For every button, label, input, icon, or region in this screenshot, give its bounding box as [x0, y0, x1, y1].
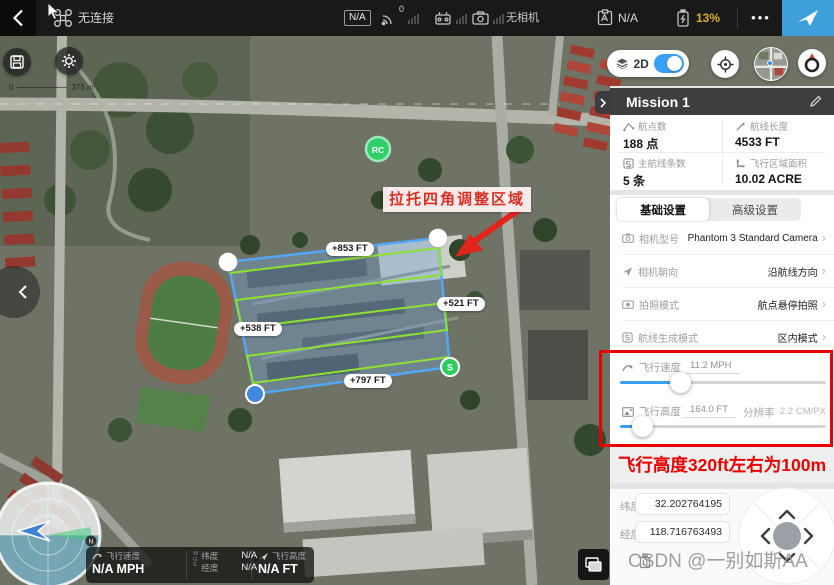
scale-start: 0 — [9, 83, 13, 92]
dpad-center[interactable] — [773, 522, 801, 550]
telemetry-alt-value: N/A FT — [258, 562, 308, 577]
mission-stats: 航点数 188 点 航线长度 4533 FT 主航线条数 5 条 飞行区域面积 … — [610, 115, 834, 190]
minimap-button[interactable] — [754, 47, 788, 81]
satellite-count: 0 — [399, 0, 404, 27]
telemetry-lat-label: 纬度 — [201, 550, 218, 562]
more-menu-button[interactable]: ••• — [744, 0, 778, 36]
toggle-2d-label: 2D — [633, 57, 648, 71]
panel-collapse-tab[interactable] — [595, 91, 611, 114]
speed-slider-knob[interactable] — [670, 372, 691, 393]
heading-arrow-icon — [622, 266, 633, 277]
chevron-right-icon: › — [822, 266, 826, 276]
route-mode-icon — [622, 332, 633, 343]
setting-value: 区内模式 — [778, 330, 818, 345]
mission-title: Mission 1 — [626, 94, 809, 110]
edge-length-label-bottom: +797 FT — [344, 374, 392, 388]
chevron-right-icon: › — [822, 299, 826, 309]
telemetry-bar: 飞行速度 N/A MPH W G S 纬度N/A 经度N/A 飞行高度 N/A … — [86, 547, 314, 583]
locate-button[interactable] — [711, 50, 739, 78]
photo-mode-icon — [622, 299, 634, 309]
camera-status: 无相机 — [506, 0, 539, 36]
stat-route-length: 航线长度 4533 FT — [722, 115, 834, 152]
stat-area: 飞行区域面积 10.02 ACRE — [722, 152, 834, 189]
stat-value: 188 点 — [623, 135, 722, 152]
stat-value: 5 条 — [623, 172, 722, 189]
main-lines-icon — [623, 158, 634, 169]
telemetry-speed-label: 飞行速度 — [106, 550, 140, 562]
save-icon — [10, 55, 24, 69]
battery-percent: 13% — [696, 0, 720, 36]
stat-label: 航线长度 — [750, 119, 788, 133]
setting-camera-model[interactable]: 相机型号 Phantom 3 Standard Camera› — [610, 222, 834, 254]
corner-handle-top-right[interactable] — [429, 229, 448, 248]
map-layer-button[interactable] — [578, 549, 609, 580]
tab-advanced-settings[interactable]: 高级设置 — [709, 198, 801, 221]
stat-value: 10.02 ACRE — [735, 172, 834, 186]
start-marker-label: S — [447, 363, 453, 373]
setting-value: 航点悬停拍照 — [758, 297, 818, 312]
chevron-right-icon — [600, 98, 606, 108]
stat-label: 主航线条数 — [638, 156, 686, 170]
chevron-left-icon — [18, 285, 28, 299]
tab-basic-settings[interactable]: 基础设置 — [617, 198, 709, 221]
speed-icon — [622, 362, 634, 373]
setting-label: 相机朝向 — [638, 264, 678, 279]
minimap-thumbnail — [755, 47, 787, 81]
layers-icon — [616, 57, 628, 70]
resolution-value: 2.2 CM/PX — [780, 406, 826, 417]
takeoff-button[interactable] — [782, 0, 834, 36]
telemetry-lng-label: 经度 — [201, 562, 218, 574]
trash-icon[interactable] — [638, 553, 652, 569]
setting-photo-mode[interactable]: 拍照模式 航点悬停拍照› — [610, 288, 834, 320]
mission-panel: Mission 1 航点数 188 点 航线长度 4533 FT 主航线条数 5… — [610, 86, 834, 585]
checklist-icon — [596, 9, 614, 27]
camera-icon — [622, 233, 634, 243]
camera-signal-bars — [493, 14, 504, 24]
map-scale-bar: 0 375 m — [9, 83, 94, 92]
telemetry-alt-label: 飞行高度 — [272, 550, 306, 562]
speed-slider-value: 11.2 MPH — [682, 360, 740, 374]
setting-camera-heading[interactable]: 相机朝向 沿航线方向› — [610, 255, 834, 287]
rc-status-badge: N/A — [618, 0, 638, 36]
altitude-icon — [622, 407, 634, 417]
resolution-label: 分辨率 — [743, 405, 775, 420]
rc-signal-bars — [456, 14, 467, 24]
map-layers-icon — [585, 557, 602, 572]
connection-status: 无连接 — [78, 0, 114, 36]
corner-handle-bottom-left[interactable] — [246, 385, 264, 403]
stat-label: 飞行区域面积 — [750, 156, 807, 170]
edge-length-label-top: +853 FT — [326, 242, 374, 256]
telemetry-speed-value: N/A MPH — [92, 562, 180, 577]
gps-badge: N/A — [344, 10, 371, 26]
satellite-icon — [380, 9, 398, 27]
chevron-right-icon: › — [822, 332, 826, 342]
altitude-plane-icon — [258, 552, 269, 561]
latitude-field[interactable]: 32.202764195 — [635, 493, 730, 515]
setting-label: 拍照模式 — [639, 297, 679, 312]
stat-waypoints: 航点数 188 点 — [610, 115, 722, 152]
locate-crosshair-icon — [717, 56, 734, 73]
gear-icon — [61, 53, 77, 69]
setting-value: 沿航线方向 — [768, 264, 818, 279]
2d-switch[interactable] — [654, 54, 684, 73]
waypoints-icon — [623, 121, 634, 132]
area-ruler-icon — [735, 158, 746, 169]
back-button[interactable] — [0, 0, 36, 36]
scale-line — [17, 87, 67, 88]
satellite-signal-bars — [408, 14, 419, 24]
corner-handle-top-left[interactable] — [219, 253, 238, 272]
edge-length-label-right: +521 FT — [437, 297, 485, 311]
remote-controller-icon — [434, 10, 452, 26]
stat-main-lines: 主航线条数 5 条 — [610, 152, 722, 189]
setting-label: 相机型号 — [639, 231, 679, 246]
drone-icon — [53, 8, 73, 28]
altitude-slider-value: 164.0 FT — [682, 404, 736, 418]
altitude-slider-knob[interactable] — [632, 416, 653, 437]
settings-tabs: 基础设置 高级设置 — [610, 195, 834, 222]
wgs-label: W G S — [193, 552, 198, 581]
gimbal-compass-button[interactable] — [798, 49, 826, 77]
longitude-field[interactable]: 118.716763493 — [635, 521, 730, 543]
stat-label: 航点数 — [638, 119, 667, 133]
speed-slider-track[interactable] — [620, 381, 826, 384]
compass-north-label: N — [89, 539, 94, 546]
app-window: S RC +853 FT +521 FT +538 FT +797 FT 拉托四… — [0, 0, 834, 585]
chevron-right-icon: › — [822, 233, 826, 243]
altitude-annotation-note: 飞行高度320ft左右为100m — [610, 447, 834, 483]
speed-icon — [92, 551, 103, 561]
scale-end: 375 m — [71, 83, 93, 92]
annotation-text: 拉托四角调整区域 — [383, 187, 531, 212]
setting-route-mode[interactable]: 航线生成模式 区内模式› — [610, 321, 834, 353]
compass-needle-icon — [802, 52, 822, 74]
top-status-bar: 无连接 N/A 0 无相机 N/A 13% ••• — [0, 0, 834, 36]
route-length-icon — [735, 121, 746, 132]
map-2d-toggle[interactable]: 2D — [607, 50, 689, 77]
flight-sliders: 飞行速度 11.2 MPH 飞行高度 164.0 FT 分辨率 2.2 CM/P… — [610, 352, 834, 447]
save-button[interactable] — [3, 48, 31, 76]
rc-marker-label: RC — [372, 145, 384, 155]
settings-button[interactable] — [55, 47, 83, 75]
airplane-icon — [796, 7, 820, 29]
setting-value: Phantom 3 Standard Camera — [688, 233, 818, 244]
edit-pencil-icon[interactable] — [809, 95, 822, 108]
setting-label: 航线生成模式 — [638, 330, 698, 345]
chevron-left-icon — [12, 9, 24, 27]
edge-length-label-left: +538 FT — [234, 322, 282, 336]
battery-icon — [676, 9, 690, 27]
camera-icon — [472, 11, 489, 25]
settings-list: 相机型号 Phantom 3 Standard Camera› 相机朝向 沿航线… — [610, 222, 834, 352]
stat-value: 4533 FT — [735, 135, 834, 149]
mission-header: Mission 1 — [610, 88, 834, 115]
coordinates-section: 纬度 32.202764195 经度 118.716763493 — [610, 489, 834, 585]
nudge-dpad[interactable] — [738, 487, 834, 585]
